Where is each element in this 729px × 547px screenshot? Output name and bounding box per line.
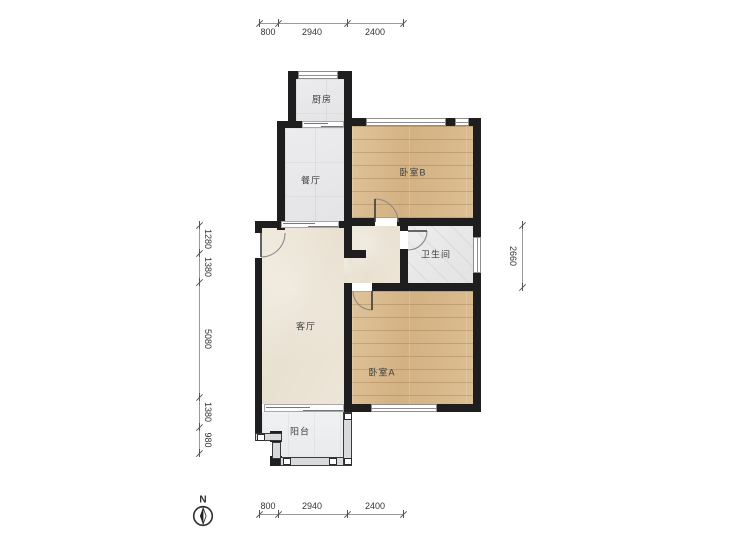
wall (352, 250, 366, 258)
room-label-dining: 餐厅 (301, 174, 321, 187)
kitchen-sliding-door (302, 121, 344, 128)
dim-label: 5080 (203, 329, 213, 349)
dim-label: 2400 (365, 27, 385, 37)
wall (344, 291, 352, 412)
dining-living-sliding-door (281, 221, 339, 228)
dim-label: 1380 (203, 257, 213, 277)
room-label-balcony: 阳台 (290, 425, 310, 438)
balcony-sliding-door (264, 404, 344, 412)
floor-plan: 厨房 餐厅 卧室B 卫生间 客厅 卧室A 阳台 800 2940 2400 80… (0, 0, 729, 547)
bedroom-b-window (366, 118, 446, 126)
dim-label: 2400 (365, 501, 385, 511)
dim-label: 2660 (508, 246, 518, 266)
wall (255, 258, 262, 441)
bedroom-a-floor (352, 291, 473, 404)
wall (344, 404, 371, 412)
dim-label: 2940 (302, 27, 322, 37)
room-label-living: 客厅 (296, 320, 316, 333)
wall (372, 283, 481, 291)
railing-post (283, 458, 291, 465)
room-label-bedroom-b: 卧室B (399, 166, 426, 179)
room-label-bathroom: 卫生间 (421, 248, 451, 261)
dimension-line-left (199, 225, 200, 453)
dimension-line-bottom (259, 514, 403, 515)
railing-post (329, 458, 337, 465)
wall (288, 71, 296, 128)
railing-post (344, 458, 352, 465)
dimension-line-top (259, 23, 403, 24)
railing-post (344, 413, 352, 420)
wall (277, 121, 285, 230)
wall (255, 221, 262, 233)
living-floor (262, 228, 344, 404)
wall (344, 71, 352, 226)
room-label-bedroom-a: 卧室A (368, 366, 395, 379)
wall (397, 218, 481, 226)
dim-label: 800 (260, 27, 275, 37)
hall-passage-floor (344, 258, 352, 283)
wall (400, 226, 408, 231)
wall (437, 404, 481, 412)
dim-label: 1380 (203, 402, 213, 422)
dim-label: 980 (203, 432, 213, 447)
dim-label: 1280 (203, 229, 213, 249)
bedroom-a-window (371, 404, 437, 412)
room-label-kitchen: 厨房 (312, 93, 332, 106)
bathroom-window (473, 237, 481, 273)
wall (344, 283, 352, 291)
dimension-line-right (522, 225, 523, 287)
wall (344, 226, 352, 258)
railing-post (257, 434, 265, 441)
dim-label: 800 (260, 501, 275, 511)
dim-label: 2940 (302, 501, 322, 511)
bedroom-b-window-small (455, 118, 469, 126)
kitchen-window (298, 71, 338, 79)
north-compass-icon (191, 504, 215, 528)
wall (339, 221, 352, 228)
